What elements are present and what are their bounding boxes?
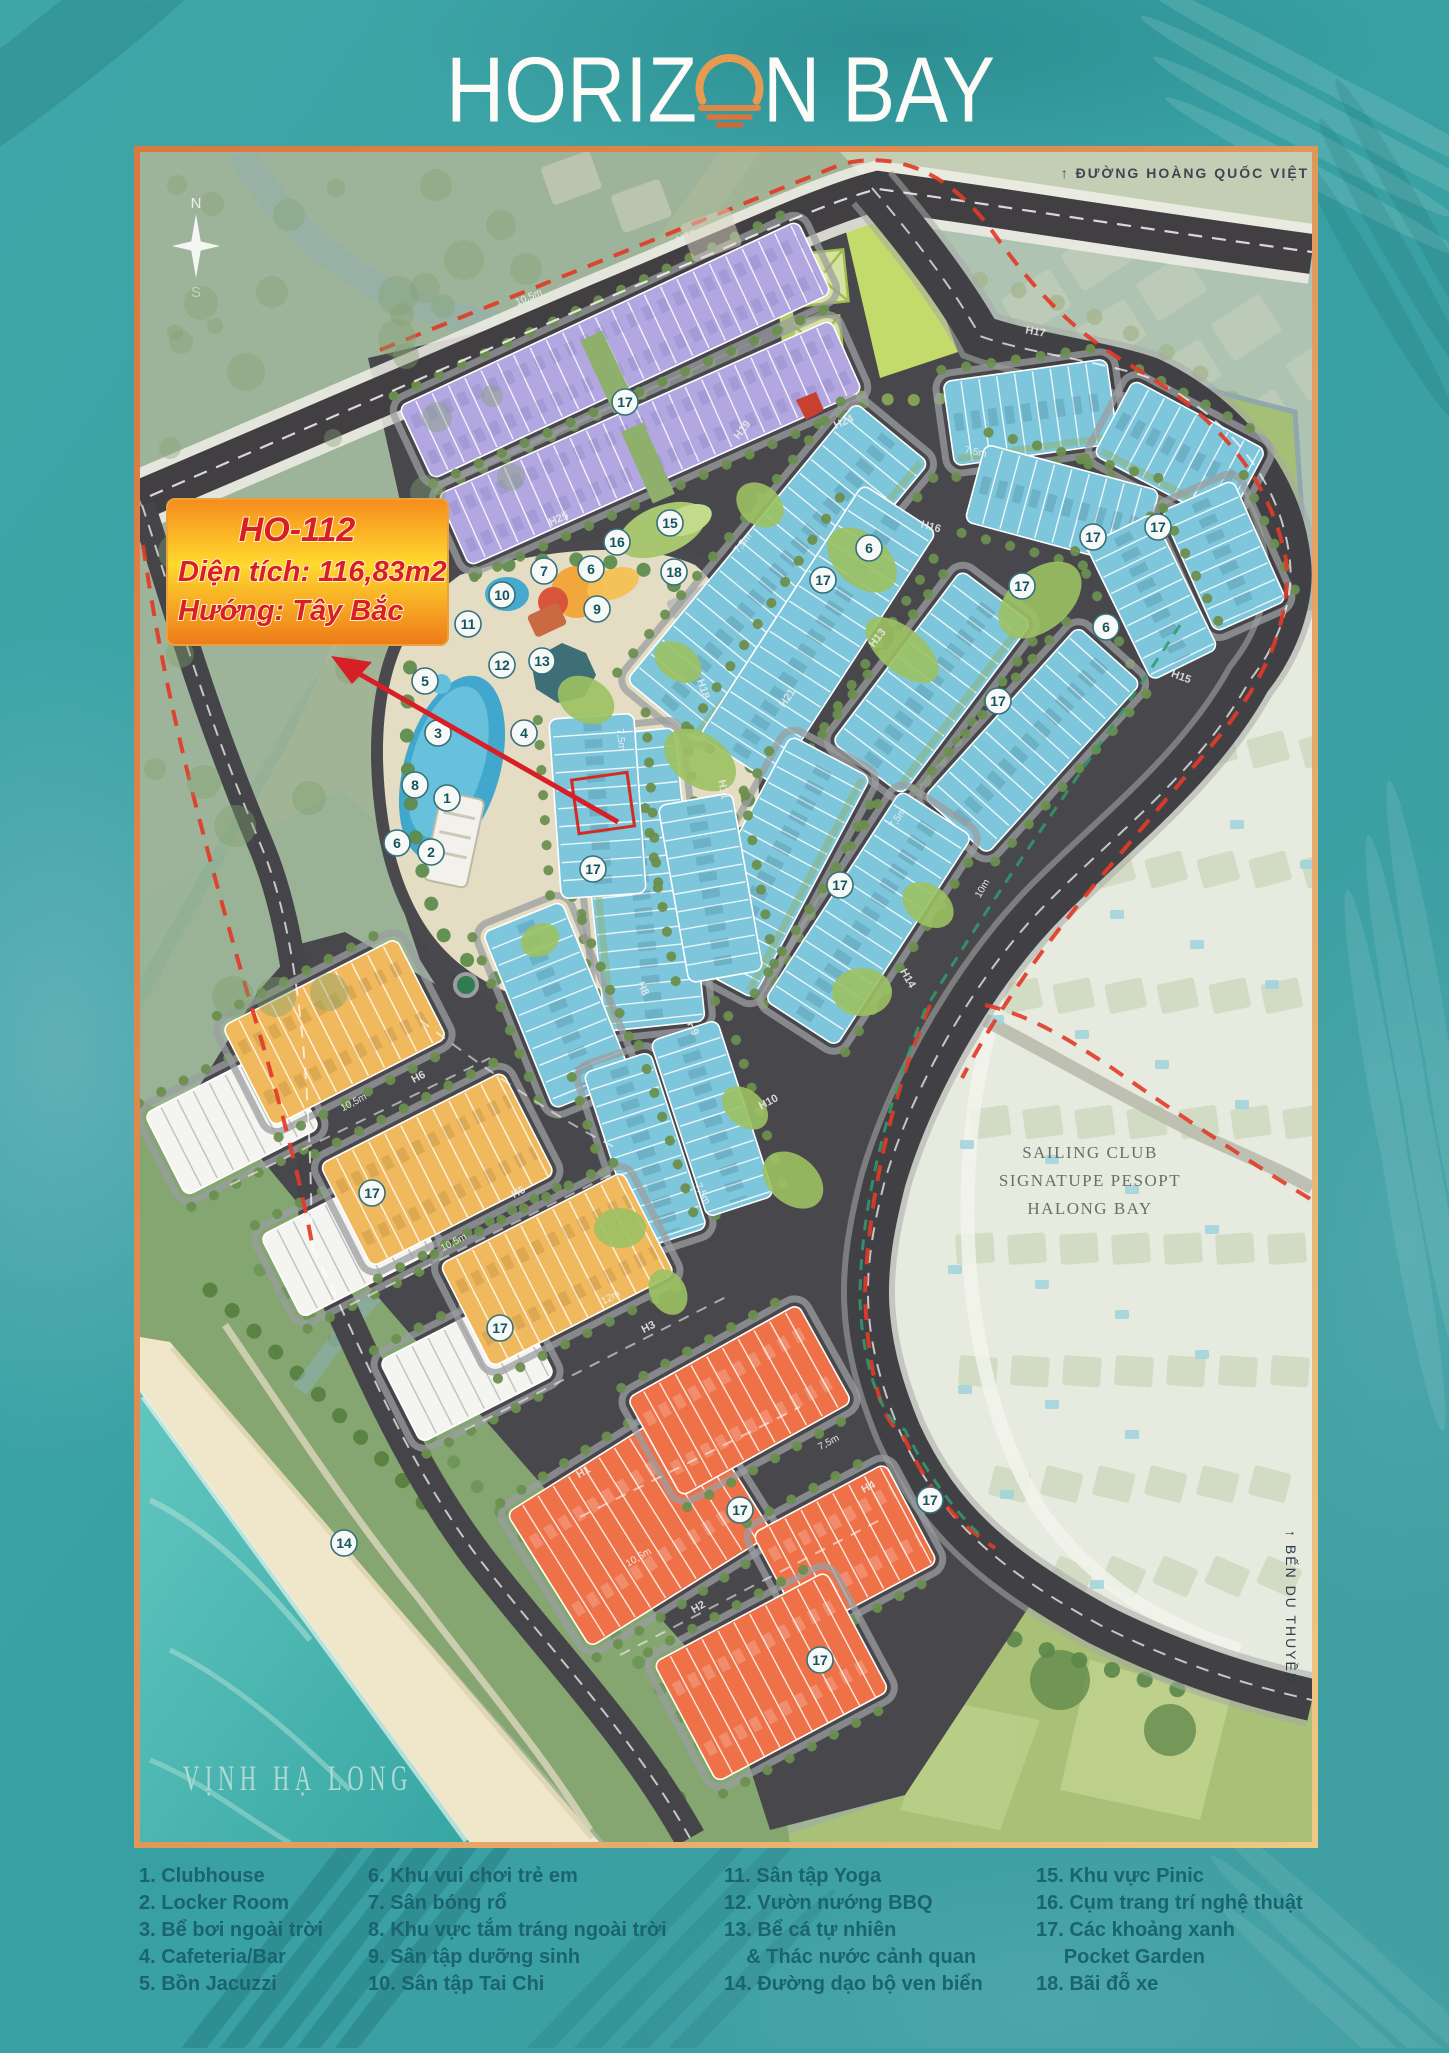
- svg-text:2: 2: [427, 844, 435, 860]
- svg-text:16: 16: [609, 534, 625, 550]
- svg-text:5. Bồn Jacuzzi: 5. Bồn Jacuzzi: [139, 1973, 277, 1995]
- svg-text:1. Clubhouse: 1. Clubhouse: [139, 1865, 265, 1887]
- svg-text:6. Khu vui chơi trẻ em: 6. Khu vui chơi trẻ em: [368, 1865, 578, 1887]
- svg-text:3: 3: [434, 725, 442, 741]
- svg-text:2. Locker Room: 2. Locker Room: [139, 1892, 289, 1914]
- svg-text:13. Bể cá tự nhiên: 13. Bể cá tự nhiên: [724, 1919, 896, 1941]
- svg-text:17: 17: [1085, 529, 1101, 545]
- svg-text:18: 18: [666, 564, 682, 580]
- svg-text:17: 17: [922, 1492, 938, 1508]
- svg-text:12. Vườn nướng BBQ: 12. Vườn nướng BBQ: [724, 1892, 933, 1914]
- svg-text:17: 17: [1150, 519, 1166, 535]
- svg-text:4: 4: [520, 725, 528, 741]
- svg-text:N: N: [191, 195, 202, 212]
- svg-text:↑ BẾN DU THUYỀN: ↑ BẾN DU THUYỀN: [1283, 1530, 1299, 1685]
- svg-text:Pocket Garden: Pocket Garden: [1036, 1946, 1205, 1968]
- svg-text:HO-112: HO-112: [239, 511, 356, 549]
- svg-text:17: 17: [832, 877, 848, 893]
- svg-text:9: 9: [593, 601, 601, 617]
- svg-text:12: 12: [494, 657, 510, 673]
- svg-text:11. Sân tập Yoga: 11. Sân tập Yoga: [724, 1865, 882, 1887]
- svg-text:8. Khu vực tắm tráng ngoài trờ: 8. Khu vực tắm tráng ngoài trời: [368, 1917, 667, 1941]
- svg-text:17: 17: [812, 1652, 828, 1668]
- svg-text:17: 17: [1014, 578, 1030, 594]
- svg-text:7,5m: 7,5m: [614, 728, 627, 751]
- svg-text:N BAY: N BAY: [763, 38, 995, 142]
- svg-text:16. Cụm trang trí nghệ thuật: 16. Cụm trang trí nghệ thuật: [1036, 1892, 1303, 1914]
- svg-text:4. Cafeteria/Bar: 4. Cafeteria/Bar: [139, 1946, 286, 1968]
- svg-text:1: 1: [443, 790, 451, 806]
- svg-text:14: 14: [336, 1535, 352, 1551]
- svg-text:SAILING CLUB: SAILING CLUB: [1022, 1143, 1158, 1162]
- svg-text:& Thác nước cảnh quan: & Thác nước cảnh quan: [724, 1946, 976, 1968]
- svg-text:Diện tích: 116,83m2: Diện tích: 116,83m2: [178, 556, 447, 588]
- svg-text:18. Bãi đỗ xe: 18. Bãi đỗ xe: [1036, 1971, 1158, 1995]
- svg-text:10. Sân tập Tai Chi: 10. Sân tập Tai Chi: [368, 1973, 544, 1995]
- svg-text:7. Sân bóng rổ: 7. Sân bóng rổ: [368, 1892, 507, 1914]
- svg-text:6: 6: [587, 561, 595, 577]
- svg-text:17: 17: [732, 1502, 748, 1518]
- svg-text:17: 17: [364, 1185, 380, 1201]
- svg-text:8: 8: [411, 777, 419, 793]
- svg-text:17: 17: [815, 572, 831, 588]
- svg-text:6: 6: [865, 540, 873, 556]
- svg-text:5: 5: [421, 673, 429, 689]
- svg-text:17: 17: [492, 1320, 508, 1336]
- svg-text:17. Các khoảng xanh: 17. Các khoảng xanh: [1036, 1919, 1235, 1941]
- svg-text:VỊNH HẠ LONG: VỊNH HẠ LONG: [183, 1758, 413, 1798]
- svg-text:SIGNATUPE PESOPT: SIGNATUPE PESOPT: [999, 1171, 1181, 1190]
- svg-text:17: 17: [585, 861, 601, 877]
- svg-text:15: 15: [662, 515, 678, 531]
- svg-text:6: 6: [393, 835, 401, 851]
- svg-text:14. Đường dạo bộ ven biển: 14. Đường dạo bộ ven biển: [724, 1973, 983, 1995]
- svg-text:HORIZ: HORIZ: [446, 38, 697, 142]
- svg-text:17: 17: [617, 394, 633, 410]
- svg-text:15. Khu vực Pinic: 15. Khu vực Pinic: [1036, 1865, 1204, 1887]
- svg-text:9. Sân tập dưỡng sinh: 9. Sân tập dưỡng sinh: [368, 1946, 580, 1968]
- svg-text:10: 10: [494, 587, 510, 603]
- svg-text:7: 7: [540, 563, 548, 579]
- svg-text:Hướng: Tây Bắc: Hướng: Tây Bắc: [178, 593, 404, 627]
- svg-text:HALONG BAY: HALONG BAY: [1027, 1199, 1152, 1218]
- svg-text:11: 11: [461, 616, 476, 632]
- svg-text:17: 17: [990, 693, 1006, 709]
- svg-text:3. Bể bơi ngoài trời: 3. Bể bơi ngoài trời: [139, 1919, 323, 1941]
- svg-text:6: 6: [1102, 619, 1110, 635]
- svg-text:13: 13: [534, 653, 550, 669]
- svg-text:↑ ĐƯỜNG HOÀNG QUỐC VIỆT: ↑ ĐƯỜNG HOÀNG QUỐC VIỆT: [1061, 164, 1309, 181]
